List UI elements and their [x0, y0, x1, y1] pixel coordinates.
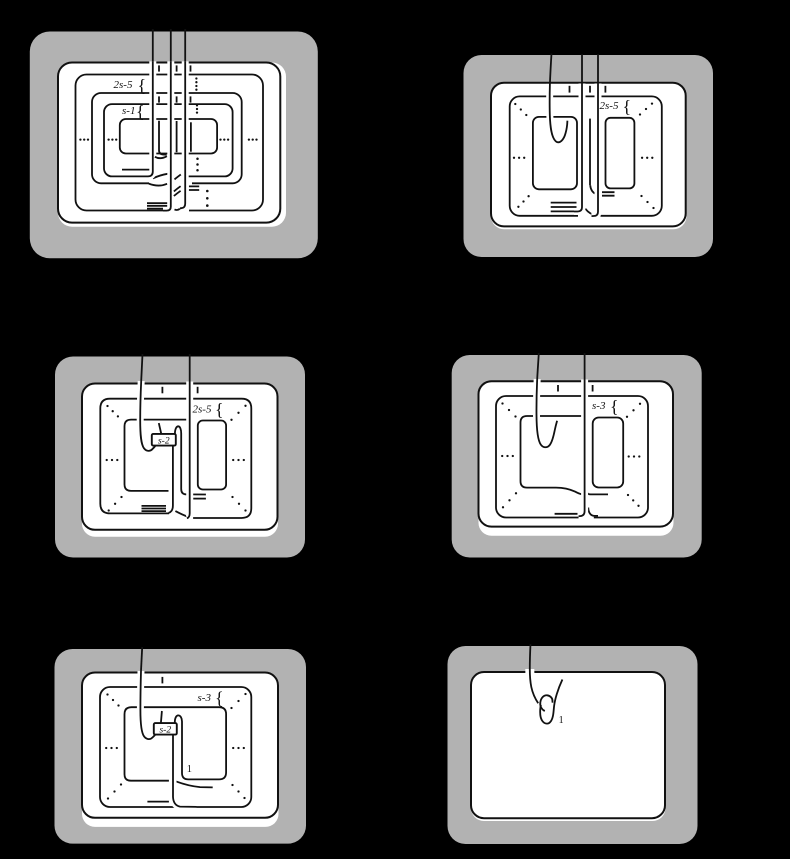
svg-text:{: { [215, 400, 224, 420]
svg-text:s-3: s-3 [198, 692, 212, 704]
svg-text:s-2: s-2 [159, 726, 171, 736]
svg-text:2s-5: 2s-5 [193, 403, 212, 415]
svg-text:{: { [138, 76, 147, 96]
svg-text:1: 1 [559, 715, 564, 726]
svg-text:s-2: s-2 [158, 436, 170, 446]
svg-text:{: { [136, 102, 145, 122]
svg-text:s-3: s-3 [592, 400, 606, 412]
svg-text:{: { [610, 397, 619, 417]
svg-text:s-1: s-1 [122, 105, 135, 117]
svg-text:1: 1 [187, 764, 192, 775]
svg-text:{: { [215, 688, 224, 708]
svg-text:2s-5: 2s-5 [600, 100, 619, 112]
svg-text:{: { [623, 97, 632, 117]
svg-text:2s-5: 2s-5 [114, 79, 133, 91]
